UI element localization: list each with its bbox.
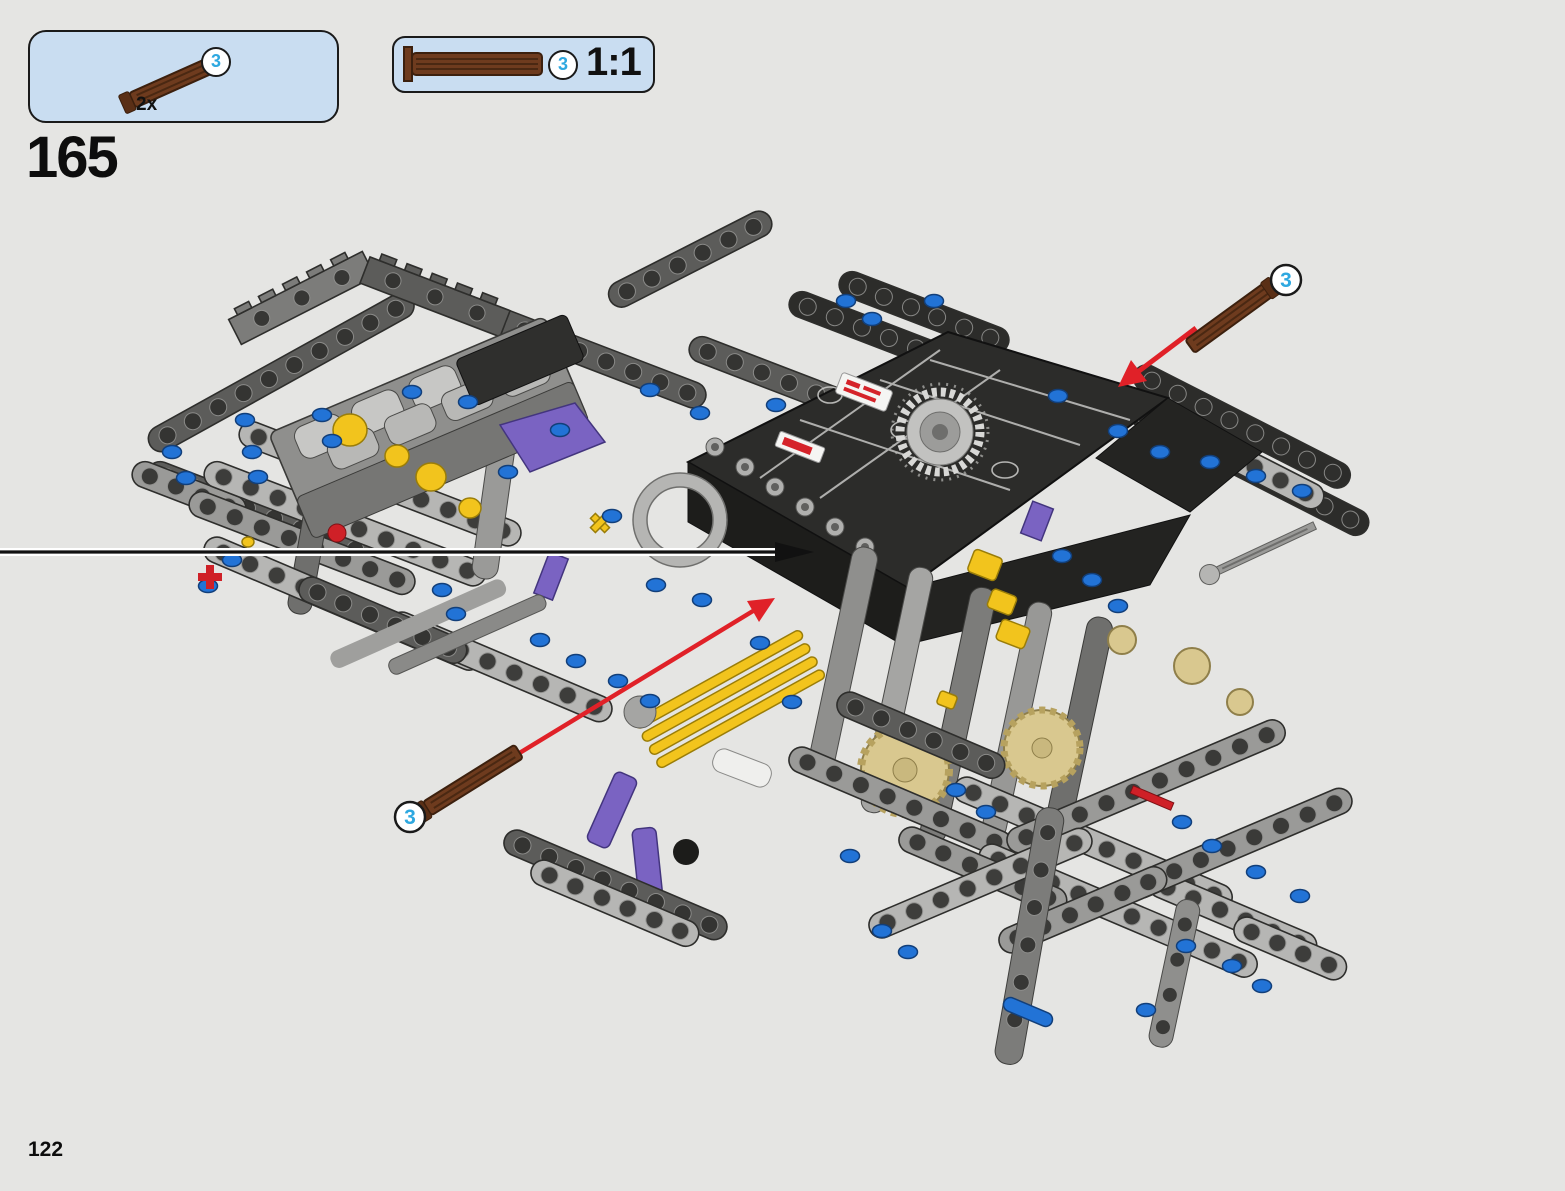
part-number-badge-upper-right: 3 xyxy=(1271,265,1301,295)
svg-text:3: 3 xyxy=(1280,269,1292,292)
black-ball-pin xyxy=(673,839,699,865)
scale-box: 3 1:1 xyxy=(392,36,655,93)
gray-axle-right xyxy=(1196,516,1319,587)
brown-axle-3l-icon xyxy=(30,32,336,120)
lower-beam-lattice xyxy=(200,533,1356,1066)
parts-callout-box: 3 2x xyxy=(28,30,339,123)
axle-part-lower-left xyxy=(413,743,525,823)
part-number-badge: 3 xyxy=(201,47,231,77)
tan-gear-small xyxy=(1004,710,1080,786)
assembly-diagram: 3 3 xyxy=(0,0,1565,1191)
step-number: 165 xyxy=(26,124,117,191)
page-number: 122 xyxy=(28,1138,63,1162)
part-number-badge: 3 xyxy=(548,50,578,80)
scale-label: 1:1 xyxy=(586,40,641,85)
instruction-page: 3 3 3 2x xyxy=(0,0,1565,1191)
part-number-badge-lower-left: 3 xyxy=(395,802,425,832)
axle-part-upper-right xyxy=(1184,277,1281,355)
svg-text:3: 3 xyxy=(404,806,416,829)
quantity-label: 2x xyxy=(136,94,157,116)
